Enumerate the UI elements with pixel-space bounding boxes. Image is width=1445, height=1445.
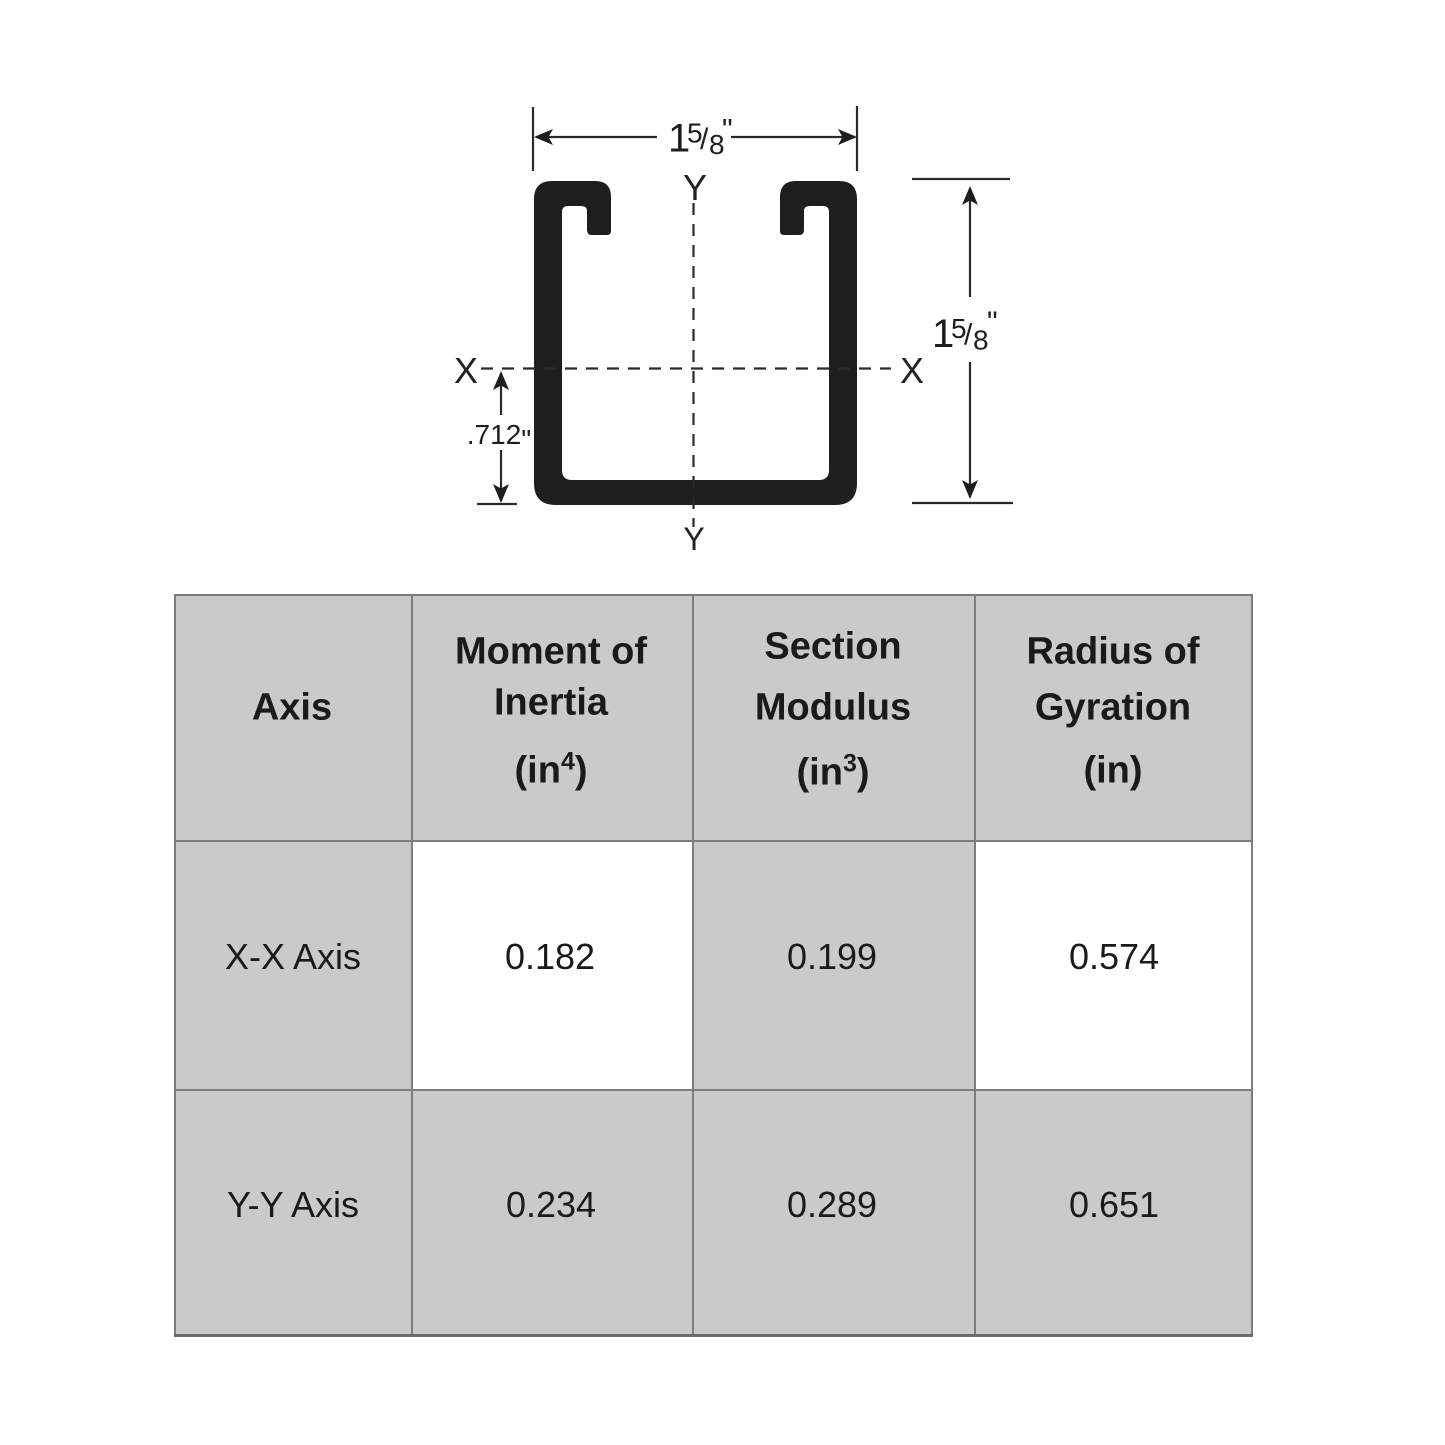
svg-text:/: /: [700, 123, 709, 156]
svg-text:": ": [722, 114, 733, 147]
svg-text:Y: Y: [683, 167, 707, 208]
svg-text:.712": .712": [467, 419, 531, 455]
svg-text:Y: Y: [683, 521, 704, 557]
svg-text:/: /: [964, 319, 973, 352]
svg-text:X: X: [454, 350, 478, 391]
svg-text:X: X: [900, 350, 924, 391]
svg-text:": ": [987, 306, 998, 339]
